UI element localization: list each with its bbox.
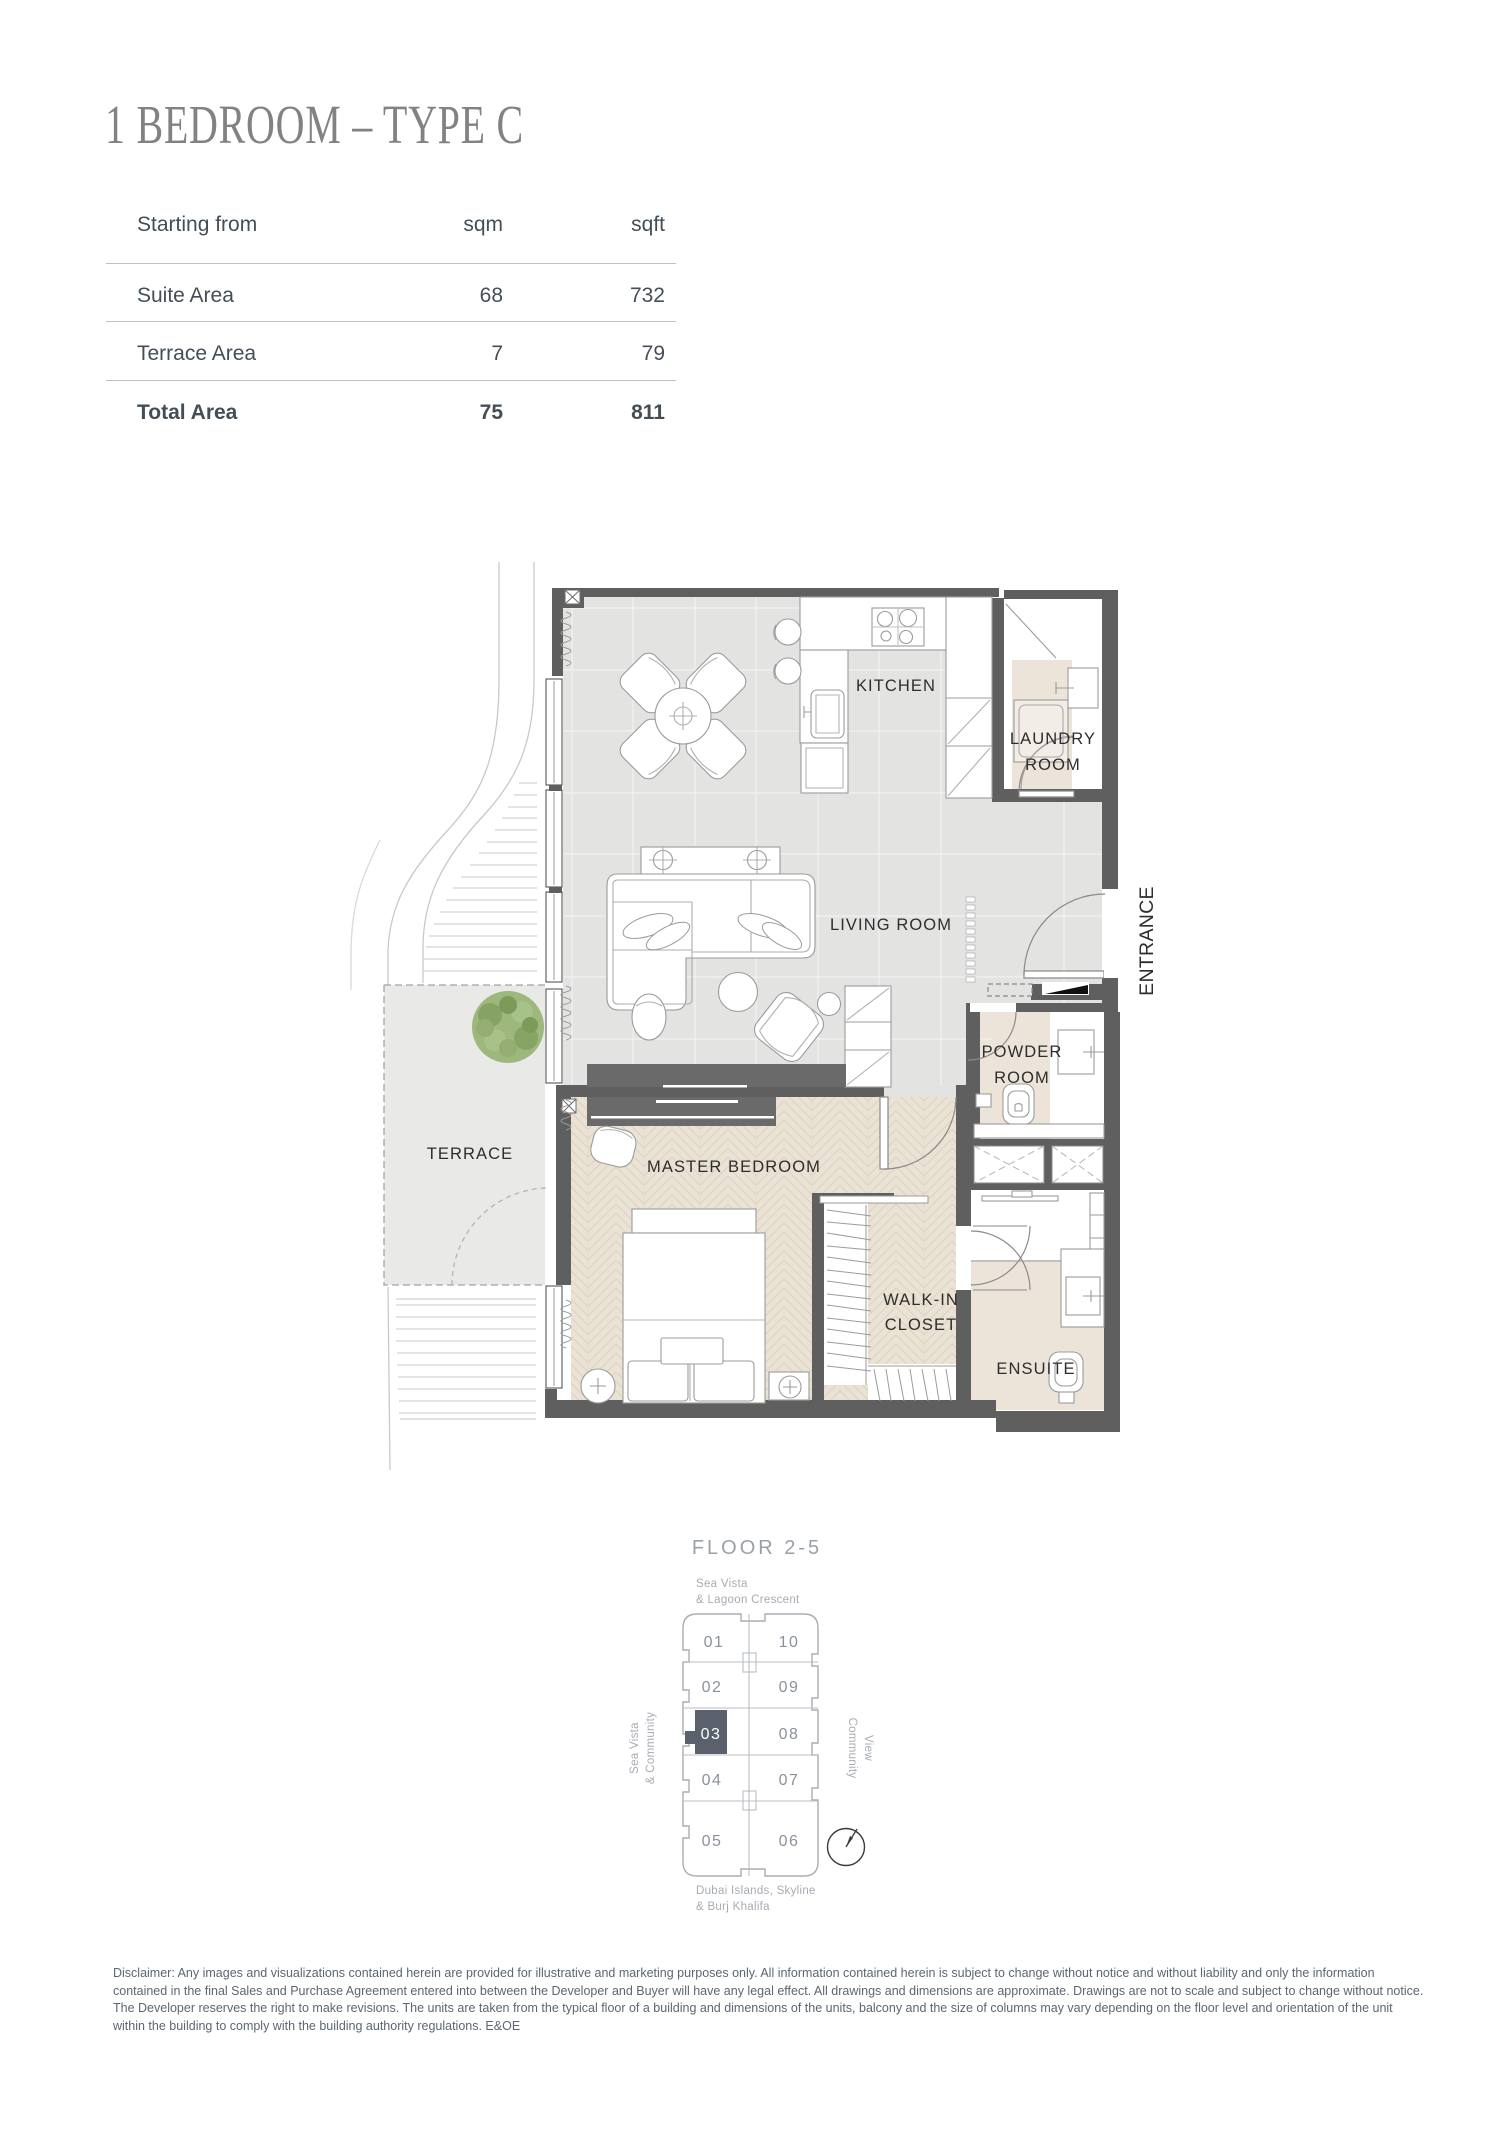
svg-text:10: 10: [779, 1634, 800, 1651]
svg-text:ENSUITE: ENSUITE: [996, 1360, 1075, 1378]
svg-text:08: 08: [779, 1726, 800, 1743]
svg-text:07: 07: [779, 1772, 800, 1789]
svg-text:06: 06: [779, 1833, 800, 1850]
svg-text:CLOSET: CLOSET: [885, 1316, 958, 1334]
svg-text:Sea Vista: Sea Vista: [696, 1578, 748, 1590]
svg-text:Community: Community: [846, 1718, 858, 1779]
svg-text:01: 01: [704, 1634, 725, 1651]
svg-text:POWDER: POWDER: [982, 1043, 1063, 1061]
svg-text:MASTER BEDROOM: MASTER BEDROOM: [647, 1158, 821, 1176]
svg-text:03: 03: [701, 1726, 722, 1743]
svg-text:Dubai Islands, Skyline: Dubai Islands, Skyline: [696, 1885, 816, 1897]
svg-text:09: 09: [779, 1679, 800, 1696]
svg-text:View: View: [862, 1735, 874, 1761]
svg-text:& Burj Khalifa: & Burj Khalifa: [696, 1901, 770, 1913]
svg-text:KITCHEN: KITCHEN: [856, 677, 936, 695]
svg-text:& Lagoon Crescent: & Lagoon Crescent: [696, 1594, 800, 1606]
svg-text:ROOM: ROOM: [994, 1069, 1050, 1087]
svg-text:FLOOR 2-5: FLOOR 2-5: [692, 1537, 822, 1559]
svg-text:& Community: & Community: [645, 1712, 657, 1784]
svg-text:ROOM: ROOM: [1025, 756, 1081, 774]
svg-text:Sea Vista: Sea Vista: [629, 1722, 641, 1774]
svg-text:02: 02: [702, 1679, 723, 1696]
svg-text:LIVING ROOM: LIVING ROOM: [830, 916, 952, 934]
svg-text:LAUNDRY: LAUNDRY: [1010, 730, 1096, 748]
svg-text:TERRACE: TERRACE: [427, 1145, 514, 1163]
svg-text:05: 05: [702, 1833, 723, 1850]
svg-text:04: 04: [702, 1772, 723, 1789]
svg-text:WALK-IN: WALK-IN: [883, 1291, 959, 1309]
svg-text:ENTRANCE: ENTRANCE: [1136, 886, 1158, 996]
